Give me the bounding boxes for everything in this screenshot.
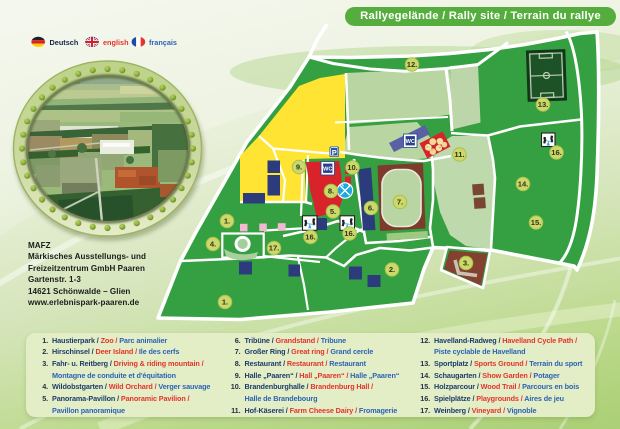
svg-text:11.: 11. [454,150,464,159]
svg-text:10.: 10. [347,163,358,172]
svg-text:7.: 7. [397,198,403,207]
svg-text:14.: 14. [518,180,529,189]
svg-text:1.: 1. [222,298,228,307]
svg-text:8.: 8. [328,187,334,196]
svg-text:5.: 5. [330,207,336,216]
svg-text:4.: 4. [210,240,216,249]
svg-text:6.: 6. [368,204,374,213]
svg-text:WC: WC [406,139,415,145]
svg-text:3.: 3. [463,259,469,268]
svg-text:P: P [332,148,337,157]
svg-text:15.: 15. [531,218,542,227]
svg-text:13.: 13. [538,100,549,109]
svg-text:9.: 9. [296,163,302,172]
svg-text:12.: 12. [407,60,418,69]
svg-text:16.: 16. [344,229,355,238]
svg-text:16.: 16. [305,233,316,242]
svg-text:2.: 2. [389,265,395,274]
svg-text:16.: 16. [551,148,562,157]
svg-text:WC: WC [323,166,332,172]
svg-text:17.: 17. [269,244,280,253]
svg-text:1.: 1. [224,217,230,226]
